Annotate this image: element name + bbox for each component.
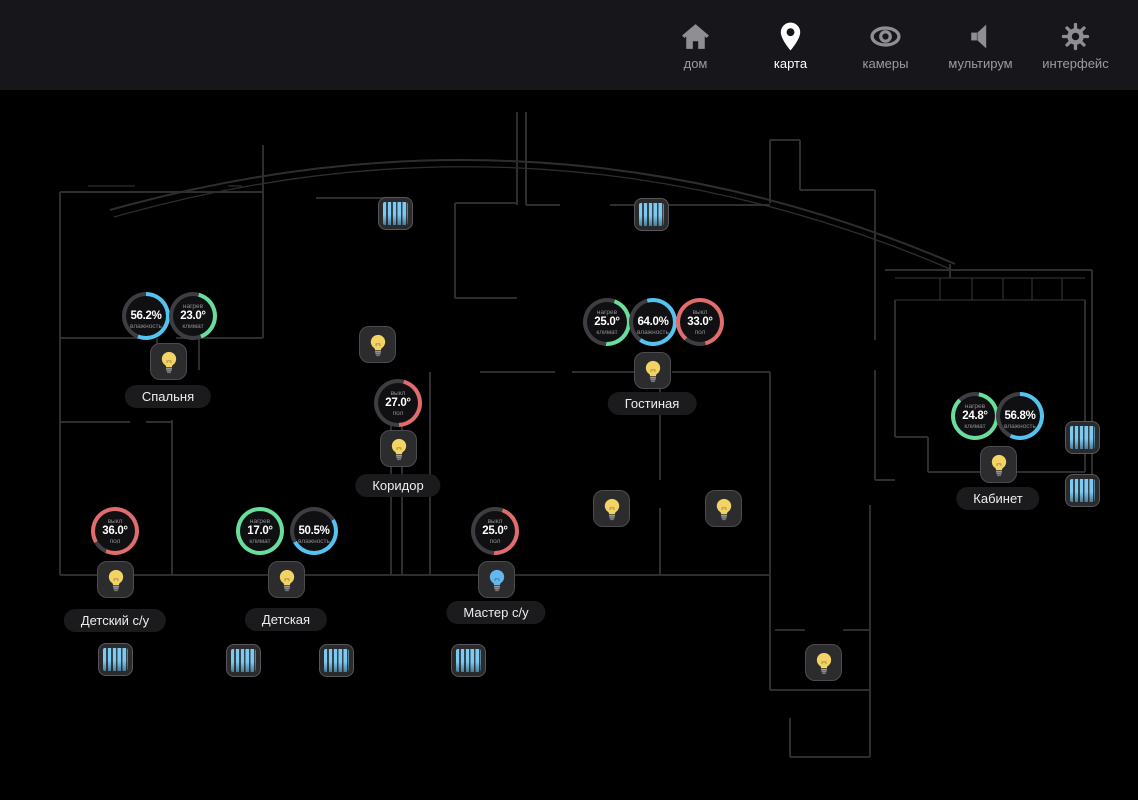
blinds-button[interactable]	[1065, 421, 1100, 454]
gauge-value: 27.0°	[385, 397, 410, 410]
gauge-mode-label: выкл	[391, 390, 406, 397]
light-button[interactable]	[380, 430, 417, 467]
room-label[interactable]: Спальня	[125, 385, 211, 408]
speaker-icon	[964, 20, 997, 53]
gauge-type-label: климат	[596, 329, 617, 336]
blinds-icon	[639, 203, 664, 226]
room-label[interactable]: Мастер с/у	[446, 601, 545, 624]
gauge-mode-label: нагрев	[965, 403, 985, 410]
gauge-mode-label: выкл	[488, 518, 503, 525]
lightbulb-icon	[365, 332, 391, 358]
blinds-icon	[231, 649, 256, 672]
room-label[interactable]: Кабинет	[956, 487, 1039, 510]
light-button[interactable]	[705, 490, 742, 527]
gauge-climate[interactable]: нагрев 17.0° климат	[236, 507, 284, 555]
lightbulb-icon	[811, 650, 837, 676]
blinds-button[interactable]	[634, 198, 669, 231]
gauge-climate[interactable]: нагрев 25.0° климат	[583, 298, 631, 346]
nav-label: мультирум	[948, 56, 1012, 71]
nav-item-home[interactable]: дом	[651, 20, 740, 71]
blinds-icon	[456, 649, 481, 672]
map-pin-icon	[774, 20, 807, 53]
lightbulb-icon	[156, 349, 182, 375]
gauge-value: 24.8°	[962, 410, 987, 423]
gauge-type-label: климат	[964, 423, 985, 430]
gauge-face: выкл 33.0° пол	[680, 302, 720, 342]
gauge-mode-label: нагрев	[250, 518, 270, 525]
gauge-face: 56.8% влажность	[1000, 396, 1040, 436]
blinds-button[interactable]	[98, 643, 133, 676]
blinds-button[interactable]	[226, 644, 261, 677]
lightbulb-icon	[711, 496, 737, 522]
gauge-type-label: влажность	[1004, 423, 1036, 430]
gauge-value: 64.0%	[637, 316, 668, 329]
floorplan-walls	[0, 90, 1138, 800]
light-button[interactable]	[478, 561, 515, 598]
blinds-icon	[1070, 479, 1095, 502]
light-button[interactable]	[634, 352, 671, 389]
gauge-face: выкл 25.0° пол	[475, 511, 515, 551]
gauge-face: выкл 36.0° пол	[95, 511, 135, 551]
light-button[interactable]	[980, 446, 1017, 483]
nav-item-cameras[interactable]: камеры	[841, 20, 930, 71]
gauge-humidity[interactable]: 64.0% влажность	[629, 298, 677, 346]
gauge-value: 36.0°	[102, 525, 127, 538]
lightbulb-icon	[640, 358, 666, 384]
gauge-face: нагрев 23.0° климат	[173, 296, 213, 336]
blinds-button[interactable]	[1065, 474, 1100, 507]
blinds-icon	[324, 649, 349, 672]
gauge-climate[interactable]: нагрев 24.8° климат	[951, 392, 999, 440]
light-button[interactable]	[150, 343, 187, 380]
lightbulb-icon	[484, 567, 510, 593]
light-button[interactable]	[359, 326, 396, 363]
gauge-mode-label: выкл	[693, 309, 708, 316]
lightbulb-icon	[386, 436, 412, 462]
light-button[interactable]	[593, 490, 630, 527]
gauge-face: 50.5% влажность	[294, 511, 334, 551]
gear-icon	[1059, 20, 1092, 53]
gauge-type-label: пол	[110, 538, 121, 545]
gauge-value: 17.0°	[247, 525, 272, 538]
gauge-type-label: влажность	[637, 329, 669, 336]
gauge-humidity[interactable]: 50.5% влажность	[290, 507, 338, 555]
nav-item-multiroom[interactable]: мультирум	[936, 20, 1025, 71]
gauge-type-label: климат	[249, 538, 270, 545]
lightbulb-icon	[599, 496, 625, 522]
room-label[interactable]: Детская	[245, 608, 327, 631]
light-button[interactable]	[268, 561, 305, 598]
gauge-face: 56.2% влажность	[126, 296, 166, 336]
nav-label: интерфейс	[1042, 56, 1108, 71]
top-nav-bar: дом карта камеры мультирум	[0, 0, 1138, 90]
gauge-type-label: влажность	[298, 538, 330, 545]
gauge-mode-label: нагрев	[597, 309, 617, 316]
lightbulb-icon	[986, 452, 1012, 478]
gauge-floor[interactable]: выкл 25.0° пол	[471, 507, 519, 555]
gauge-mode-label: выкл	[108, 518, 123, 525]
gauge-value: 25.0°	[482, 525, 507, 538]
gauge-humidity[interactable]: 56.8% влажность	[996, 392, 1044, 440]
gauge-type-label: влажность	[130, 323, 162, 330]
home-icon	[679, 20, 712, 53]
nav-label: дом	[684, 56, 708, 71]
gauge-value: 56.8%	[1004, 410, 1035, 423]
blinds-button[interactable]	[451, 644, 486, 677]
gauge-type-label: климат	[182, 323, 203, 330]
gauge-climate[interactable]: нагрев 23.0° климат	[169, 292, 217, 340]
gauge-face: нагрев 24.8° климат	[955, 396, 995, 436]
lightbulb-icon	[103, 567, 129, 593]
blinds-button[interactable]	[319, 644, 354, 677]
gauge-floor[interactable]: выкл 27.0° пол	[374, 379, 422, 427]
floorplan-map: 56.2% влажность нагрев 23.0° климат нагр…	[0, 90, 1138, 800]
gauge-value: 25.0°	[594, 316, 619, 329]
nav-item-map[interactable]: карта	[746, 20, 835, 71]
gauge-face: 64.0% влажность	[633, 302, 673, 342]
gauge-face: нагрев 17.0° климат	[240, 511, 280, 551]
gauge-type-label: пол	[695, 329, 706, 336]
gauge-value: 33.0°	[687, 316, 712, 329]
gauge-floor[interactable]: выкл 36.0° пол	[91, 507, 139, 555]
gauge-value: 50.5%	[298, 525, 329, 538]
blinds-button[interactable]	[378, 197, 413, 230]
light-button[interactable]	[805, 644, 842, 681]
lightbulb-icon	[274, 567, 300, 593]
gauge-type-label: пол	[490, 538, 501, 545]
blinds-icon	[103, 648, 128, 671]
room-label[interactable]: Коридор	[355, 474, 440, 497]
gauge-value: 56.2%	[130, 310, 161, 323]
gauge-mode-label: нагрев	[183, 303, 203, 310]
gauge-face: выкл 27.0° пол	[378, 383, 418, 423]
nav-label: камеры	[863, 56, 909, 71]
room-label[interactable]: Гостиная	[608, 392, 697, 415]
gauge-humidity[interactable]: 56.2% влажность	[122, 292, 170, 340]
nav-label: карта	[774, 56, 807, 71]
eye-icon	[869, 20, 902, 53]
nav-item-interface[interactable]: интерфейс	[1031, 20, 1120, 71]
gauge-value: 23.0°	[180, 310, 205, 323]
light-button[interactable]	[97, 561, 134, 598]
gauge-face: нагрев 25.0° климат	[587, 302, 627, 342]
blinds-icon	[383, 202, 408, 225]
blinds-icon	[1070, 426, 1095, 449]
gauge-floor[interactable]: выкл 33.0° пол	[676, 298, 724, 346]
room-label[interactable]: Детский с/у	[64, 609, 166, 632]
gauge-type-label: пол	[393, 410, 404, 417]
